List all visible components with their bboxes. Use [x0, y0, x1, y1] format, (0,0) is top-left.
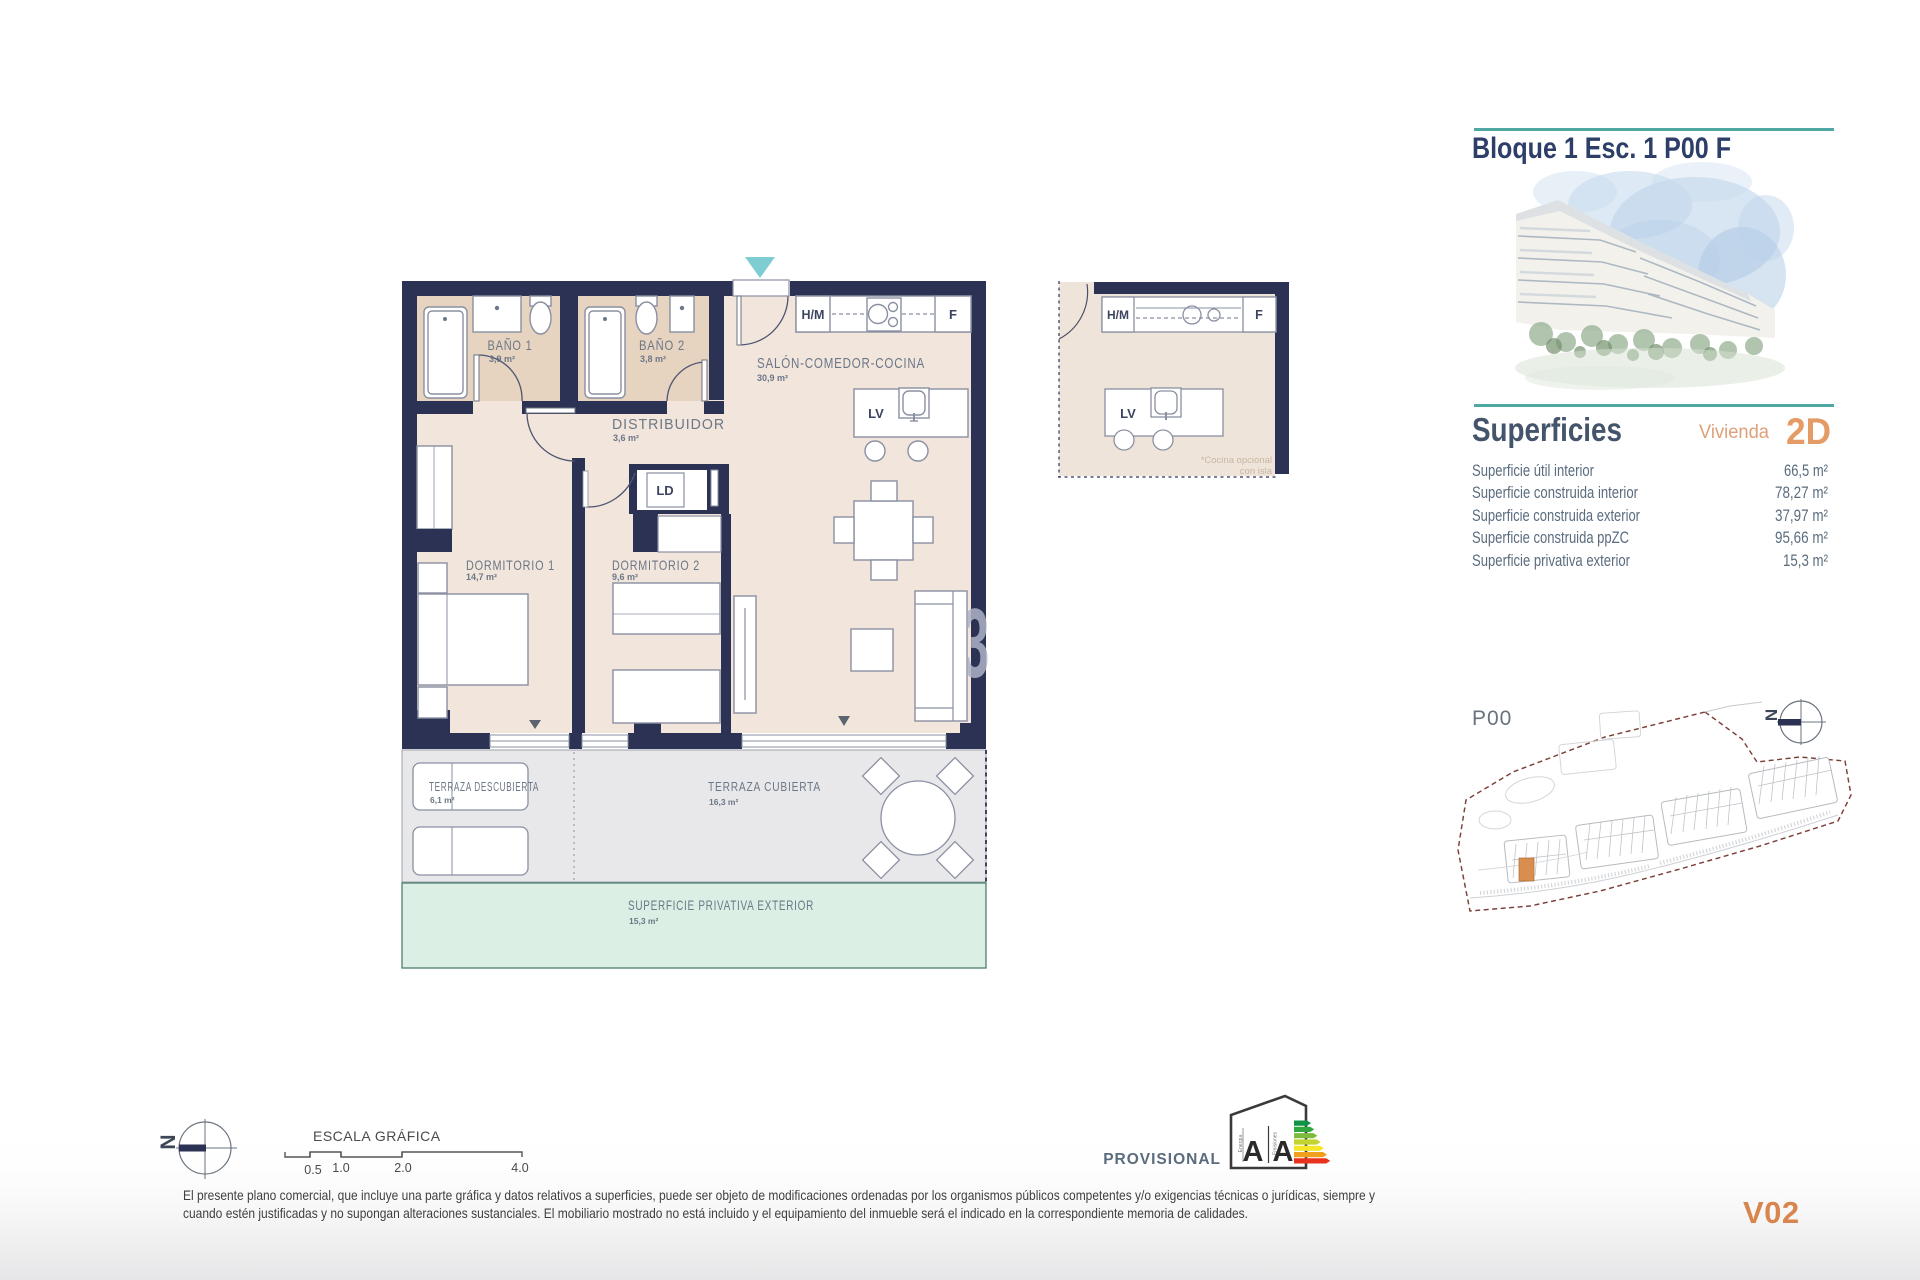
svg-text:SALÓN-COMEDOR-COCINA: SALÓN-COMEDOR-COCINA — [757, 355, 925, 372]
svg-text:F: F — [949, 307, 957, 322]
svg-text:14,7 m²: 14,7 m² — [466, 572, 497, 582]
svg-text:P00: P00 — [1472, 707, 1512, 730]
svg-text:95,66 m²: 95,66 m² — [1775, 528, 1828, 547]
svg-text:3,8 m²: 3,8 m² — [640, 354, 666, 364]
svg-text:DISTRIBUIDOR: DISTRIBUIDOR — [612, 417, 725, 433]
svg-text:A: A — [1243, 1136, 1264, 1168]
svg-text:2.0: 2.0 — [394, 1161, 411, 1175]
svg-text:16,3 m²: 16,3 m² — [709, 797, 738, 807]
svg-text:66,5 m²: 66,5 m² — [1784, 461, 1828, 480]
svg-text:BAÑO 1: BAÑO 1 — [488, 337, 533, 353]
svg-text:N: N — [157, 1134, 180, 1149]
svg-text:Superficie útil interior: Superficie útil interior — [1472, 461, 1594, 480]
svg-text:El presente plano comercial, q: El presente plano comercial, que incluye… — [183, 1187, 1375, 1203]
svg-text:BAÑO 2: BAÑO 2 — [639, 337, 685, 353]
svg-text:3,9 m²: 3,9 m² — [489, 354, 515, 364]
svg-text:TERRAZA CUBIERTA: TERRAZA CUBIERTA — [708, 779, 821, 794]
svg-text:Vivienda: Vivienda — [1699, 422, 1769, 443]
svg-text:1.0: 1.0 — [332, 1161, 349, 1175]
svg-text:DORMITORIO 1: DORMITORIO 1 — [466, 557, 555, 573]
svg-text:N: N — [1762, 709, 1781, 721]
svg-text:F: F — [1255, 308, 1263, 322]
svg-text:15,3 m²: 15,3 m² — [1783, 551, 1828, 570]
svg-text:0.5: 0.5 — [304, 1163, 321, 1177]
svg-text:9,6 m²: 9,6 m² — [612, 572, 638, 582]
svg-text:Bloque 1 Esc. 1 P00 F: Bloque 1 Esc. 1 P00 F — [1472, 132, 1731, 165]
svg-text:A: A — [1273, 1136, 1294, 1168]
svg-text:6,1 m²: 6,1 m² — [430, 795, 455, 805]
svg-text:15,3 m²: 15,3 m² — [629, 916, 658, 926]
svg-text:4.0: 4.0 — [511, 1161, 528, 1175]
svg-text:LV: LV — [1120, 406, 1136, 421]
svg-text:37,97 m²: 37,97 m² — [1775, 506, 1828, 525]
svg-text:Superficie construida exterior: Superficie construida exterior — [1472, 506, 1640, 525]
svg-text:LD: LD — [656, 483, 673, 498]
svg-text:78,27 m²: 78,27 m² — [1775, 483, 1828, 502]
svg-text:H/M: H/M — [1107, 308, 1129, 322]
svg-text:ESCALA GRÁFICA: ESCALA GRÁFICA — [313, 1128, 441, 1144]
svg-text:LV: LV — [868, 406, 884, 421]
svg-text:PROVISIONAL: PROVISIONAL — [1103, 1151, 1221, 1168]
svg-text:*Cocina opcional: *Cocina opcional — [1201, 455, 1272, 466]
svg-text:DORMITORIO 2: DORMITORIO 2 — [612, 557, 700, 573]
svg-text:Superficie construida interior: Superficie construida interior — [1472, 483, 1638, 502]
svg-text:con isla: con isla — [1240, 466, 1273, 477]
svg-text:2D: 2D — [1786, 411, 1831, 452]
svg-text:cuando estén justificadas y no: cuando estén justificadas y no supongan … — [183, 1205, 1248, 1221]
svg-text:SUPERFICIE PRIVATIVA EXTERIOR: SUPERFICIE PRIVATIVA EXTERIOR — [628, 897, 814, 913]
svg-text:3,6 m²: 3,6 m² — [613, 433, 639, 443]
svg-text:Superficie privativa exterior: Superficie privativa exterior — [1472, 551, 1630, 570]
svg-text:Superficie construida ppZC: Superficie construida ppZC — [1472, 528, 1629, 547]
svg-text:30,9 m²: 30,9 m² — [757, 373, 788, 383]
svg-text:Superficies: Superficies — [1472, 411, 1622, 448]
svg-text:V02: V02 — [1743, 1195, 1800, 1230]
svg-text:TERRAZA DESCUBIERTA: TERRAZA DESCUBIERTA — [429, 779, 539, 794]
svg-text:H/M: H/M — [802, 308, 825, 322]
